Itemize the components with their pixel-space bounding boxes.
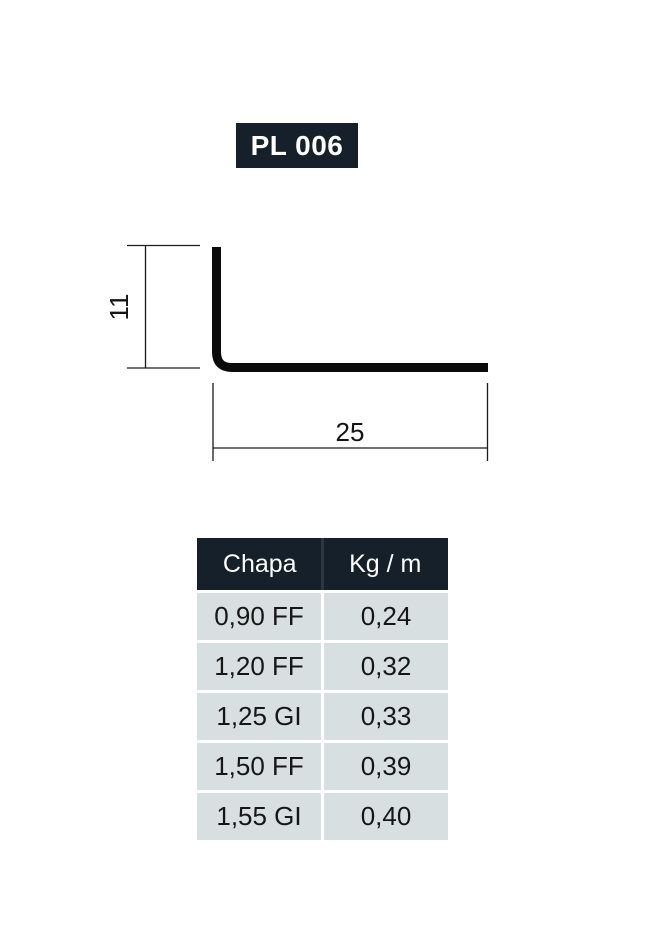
profile-shape <box>217 247 489 368</box>
cell-kg: 0,40 <box>324 793 448 840</box>
table-row: 1,50 FF 0,39 <box>197 743 448 790</box>
cell-chapa: 1,55 GI <box>197 793 321 840</box>
cell-chapa: 1,50 FF <box>197 743 321 790</box>
profile-diagram: 11 25 <box>0 0 645 500</box>
catalog-page: PL 006 11 25 Chapa Kg / m 0,90 FF 0,2 <box>0 0 645 952</box>
header-column-divider <box>321 538 324 590</box>
height-dimension-lines <box>127 246 200 369</box>
table-row: 1,25 GI 0,33 <box>197 693 448 740</box>
cell-chapa: 1,25 GI <box>197 693 321 740</box>
table-row: 1,20 FF 0,32 <box>197 643 448 690</box>
table-header-kg: Kg / m <box>323 538 449 590</box>
height-dimension-label: 11 <box>104 294 134 321</box>
cell-chapa: 0,90 FF <box>197 593 321 640</box>
cell-kg: 0,32 <box>324 643 448 690</box>
cell-kg: 0,33 <box>324 693 448 740</box>
table-header-row: Chapa Kg / m <box>197 538 448 590</box>
table-header-chapa: Chapa <box>197 538 323 590</box>
table-row: 0,90 FF 0,24 <box>197 593 448 640</box>
spec-table: Chapa Kg / m 0,90 FF 0,24 1,20 FF 0,32 1… <box>197 538 448 840</box>
cell-kg: 0,39 <box>324 743 448 790</box>
width-dimension-label: 25 <box>336 417 365 447</box>
cell-kg: 0,24 <box>324 593 448 640</box>
cell-chapa: 1,20 FF <box>197 643 321 690</box>
table-row: 1,55 GI 0,40 <box>197 793 448 840</box>
